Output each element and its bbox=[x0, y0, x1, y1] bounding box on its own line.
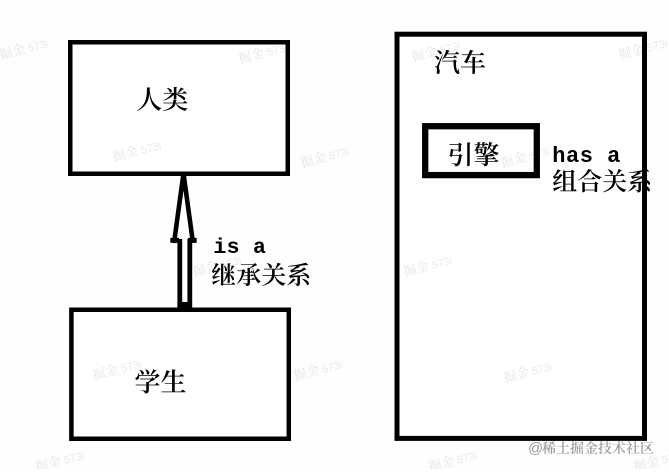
svg-text:@: @ bbox=[528, 440, 543, 457]
svg-text:has a: has a bbox=[552, 144, 621, 169]
